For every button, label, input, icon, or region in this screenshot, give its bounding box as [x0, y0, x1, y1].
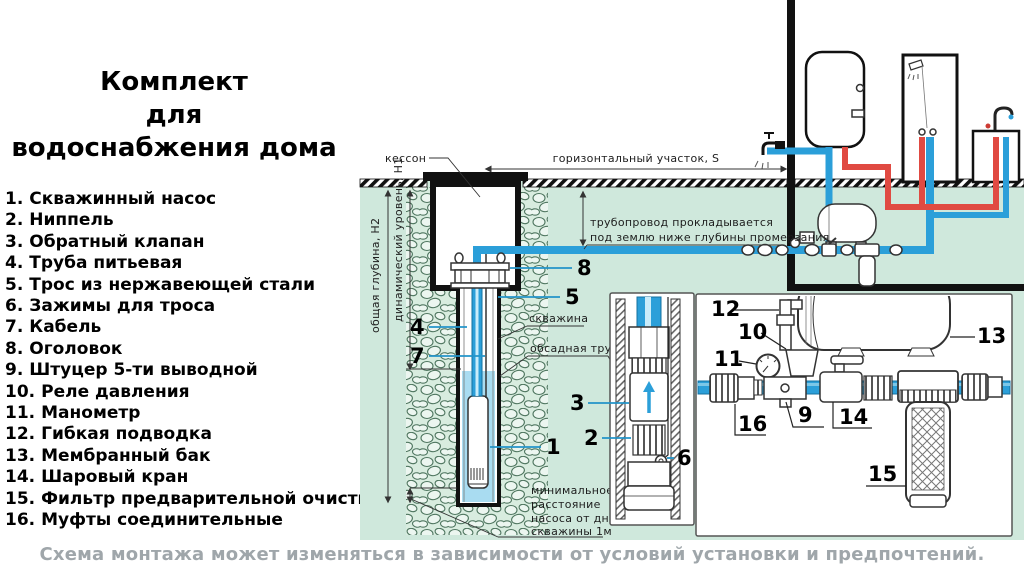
detail-panel-well-assembly [610, 293, 694, 525]
footer-caption: Схема монтажа может изменяться в зависим… [0, 544, 1024, 565]
svg-text:3: 3 [570, 391, 585, 415]
svg-text:11: 11 [714, 347, 743, 371]
label-horizontal-s: горизонтальный участок, S [553, 152, 720, 165]
svg-text:14: 14 [839, 405, 868, 429]
svg-text:15: 15 [868, 462, 897, 486]
svg-text:4: 4 [410, 315, 425, 339]
label-min-3: насоса от дна [531, 512, 616, 525]
faucet-icon [995, 108, 1012, 130]
svg-text:5: 5 [565, 285, 580, 309]
installation-diagram: горизонтальный участок, S кессон трубопр… [0, 0, 1024, 576]
ball-valve-detail [820, 372, 862, 402]
svg-text:13: 13 [977, 324, 1006, 348]
svg-text:9: 9 [798, 403, 813, 427]
svg-text:8: 8 [577, 256, 592, 280]
svg-text:6: 6 [677, 446, 692, 470]
water-heater [806, 52, 864, 147]
coupling-left-detail [710, 374, 738, 402]
label-h1: динамический уровень, H1 [392, 158, 405, 323]
caisson-lid [423, 172, 528, 181]
svg-text:10: 10 [738, 320, 767, 344]
pump-top-detail [628, 462, 670, 486]
poster: Комплект для водоснабжения дома 1.Скважи… [0, 0, 1024, 576]
label-min-4: скважины 1м [531, 525, 612, 538]
valve-lever [831, 356, 863, 364]
basement-floor [787, 284, 1024, 291]
coupling-detail [629, 327, 669, 358]
callout-14: 14 [833, 402, 872, 429]
coupling-right-detail [962, 374, 988, 400]
well-shaft [458, 252, 499, 505]
svg-text:16: 16 [738, 412, 767, 436]
svg-text:2: 2 [584, 426, 599, 450]
valve-small [822, 244, 836, 256]
svg-text:12: 12 [711, 297, 740, 321]
svg-text:7: 7 [410, 344, 425, 368]
label-frost-2: под землю ниже глубины промерзания [590, 231, 830, 244]
label-min-1: минимальное [531, 484, 613, 497]
label-well: скважина [529, 312, 588, 325]
pressure-relay-detail [786, 350, 818, 376]
filter-small [859, 256, 875, 286]
svg-text:1: 1 [546, 435, 561, 459]
label-min-2: расстояние [531, 498, 601, 511]
label-h2: общая глубина, H2 [369, 218, 382, 333]
label-frost-1: трубопровод прокладывается [590, 216, 773, 229]
nipple-detail [633, 425, 665, 455]
